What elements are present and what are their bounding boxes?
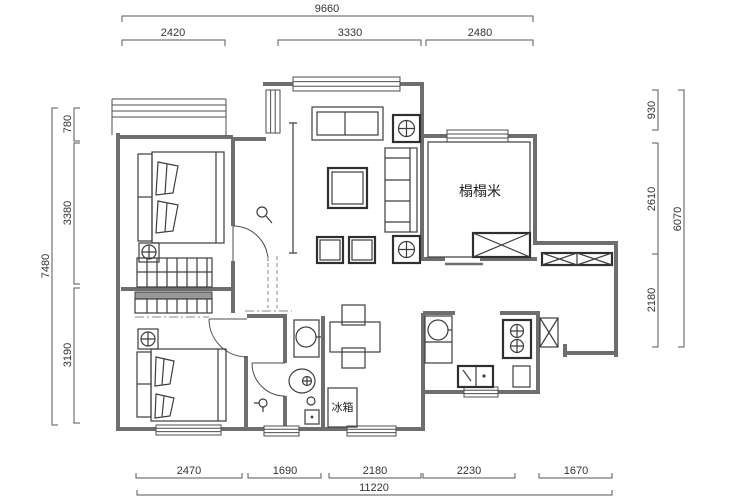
dim-top-total: 9660 xyxy=(315,3,339,15)
window-living-top xyxy=(293,77,400,91)
dimensions-right: 930 2610 2180 6070 xyxy=(646,90,684,347)
dim-left-seg-1: 780 xyxy=(62,115,74,133)
floor-plan-svg: 9660 2420 3330 2480 2470 1690 2180 2230 … xyxy=(0,0,740,500)
dim-left-seg-2: 3380 xyxy=(62,201,74,225)
dimensions-left: 780 3380 3190 7480 xyxy=(40,108,80,425)
kitchen-counter-small xyxy=(513,366,530,387)
pouf-right xyxy=(349,237,375,263)
fridge: 冰箱 xyxy=(328,388,357,427)
hall-cabinet xyxy=(540,318,558,347)
window-bathroom xyxy=(264,426,299,436)
entry-hall xyxy=(540,253,612,347)
shoe-cabinet xyxy=(542,253,612,265)
tatami-label: 榻榻米 xyxy=(459,183,501,199)
gas-stove xyxy=(503,320,531,358)
dim-bottom-seg-4: 2230 xyxy=(457,465,481,477)
dim-right-seg-3: 2180 xyxy=(646,288,658,312)
living-room-furniture xyxy=(312,107,420,263)
shower-head xyxy=(254,399,267,412)
dim-top-seg-2: 3330 xyxy=(338,27,362,39)
pouf-left xyxy=(317,237,343,263)
tatami-room: 榻榻米 xyxy=(428,142,530,257)
window-living-left xyxy=(266,90,280,133)
kitchen-counter-left xyxy=(425,316,452,363)
dim-right-total: 6070 xyxy=(672,207,684,231)
door-bedroom2 xyxy=(209,319,247,357)
bedroom2-bed xyxy=(137,349,226,421)
window-bedroom2 xyxy=(156,425,221,435)
dim-left-total: 7480 xyxy=(40,254,52,278)
bedroom1-bed xyxy=(138,152,224,243)
fridge-label: 冰箱 xyxy=(332,400,354,414)
door-stop-symbol xyxy=(257,207,272,223)
dining-chair-bottom xyxy=(342,348,365,368)
bedroom2-furniture xyxy=(135,292,226,421)
bedroom2-bedside-lamp xyxy=(138,329,158,349)
side-table-lamp-top xyxy=(393,115,420,142)
tatami-cabinet xyxy=(473,233,530,257)
door-bedroom1 xyxy=(233,226,268,261)
coffee-table xyxy=(328,168,367,208)
sofa xyxy=(385,148,417,232)
dim-right-seg-2: 2610 xyxy=(646,187,658,211)
dimensions-top: 9660 2420 3330 2480 xyxy=(122,3,533,46)
window-kitchen xyxy=(464,387,498,397)
dim-bottom-seg-2: 1690 xyxy=(273,465,297,477)
bathroom-fixtures xyxy=(254,320,321,424)
bedroom1-furniture xyxy=(137,152,224,287)
living-curtain-line xyxy=(289,123,297,253)
toilet xyxy=(289,369,315,393)
tv-cabinet xyxy=(312,107,383,140)
side-table-lamp-bottom xyxy=(393,236,420,263)
dim-right-seg-1: 930 xyxy=(646,101,658,119)
bedroom1-bedside-lamp xyxy=(139,243,159,262)
dining-furniture: 冰箱 xyxy=(328,305,380,427)
door-bathroom xyxy=(252,363,285,396)
kitchen-sink xyxy=(458,366,493,387)
dim-top-seg-3: 2480 xyxy=(468,27,492,39)
dim-left-seg-3: 3190 xyxy=(62,343,74,367)
floor-drain xyxy=(305,397,319,424)
bedroom2-wardrobe xyxy=(135,292,212,313)
floor-plan-canvas: 9660 2420 3330 2480 2470 1690 2180 2230 … xyxy=(0,0,740,500)
dimensions-bottom: 2470 1690 2180 2230 1670 11220 xyxy=(136,465,612,495)
kitchen-fixtures xyxy=(425,316,531,387)
dim-bottom-seg-5: 1670 xyxy=(564,465,588,477)
washbasin xyxy=(294,320,321,357)
dim-top-seg-1: 2420 xyxy=(161,27,185,39)
window-tatami xyxy=(447,130,508,142)
bay-window-bedroom1 xyxy=(112,99,226,136)
dim-bottom-seg-1: 2470 xyxy=(177,465,201,477)
dim-bottom-seg-3: 2180 xyxy=(363,465,387,477)
dim-bottom-total: 11220 xyxy=(359,482,389,494)
